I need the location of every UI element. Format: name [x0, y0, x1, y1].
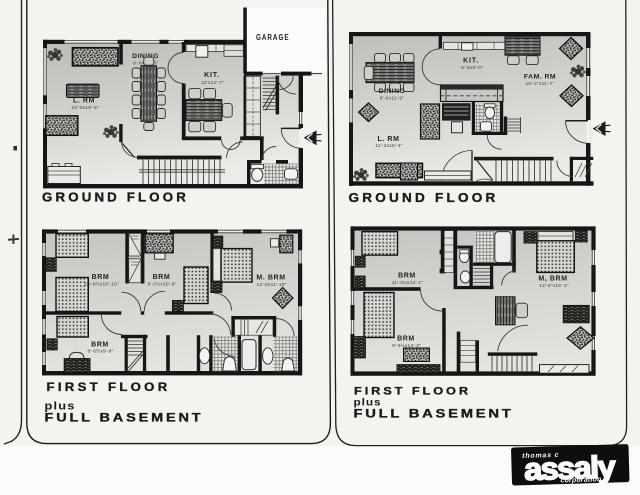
svg-text:8'-6x9'-0": 8'-6x9'-0": [461, 65, 483, 71]
svg-text:FULL BASEMENT: FULL BASEMENT: [45, 410, 204, 424]
svg-text:BRM: BRM: [397, 335, 415, 342]
svg-text:BRM: BRM: [153, 274, 171, 281]
svg-text:12'-0x11'-10": 12'-0x11'-10": [256, 282, 286, 288]
svg-text:FIRST FLOOR: FIRST FLOOR: [47, 380, 171, 394]
svg-text:10'-9½x10'-10": 10'-9½x10'-10": [84, 281, 119, 288]
svg-text:FAM. RM: FAM. RM: [524, 74, 556, 81]
svg-text:FULL BASEMENT: FULL BASEMENT: [354, 406, 514, 420]
svg-text:GROUND FLOOR: GROUND FLOOR: [42, 190, 189, 204]
svg-text:11'-3¼x12'-1": 11'-3¼x12'-1": [392, 280, 423, 286]
svg-text:8'-6½x9'-9": 8'-6½x9'-9": [88, 348, 114, 355]
svg-text:L. RM: L. RM: [73, 98, 95, 105]
svg-text:8'-0x11'-9": 8'-0x11'-9": [380, 95, 404, 101]
svg-text:12'-9"x16'-3": 12'-9"x16'-3": [539, 283, 569, 289]
svg-text:L. RM: L. RM: [377, 136, 399, 143]
svg-text:GARAGE: GARAGE: [256, 33, 290, 42]
svg-text:10'-0x19'-9": 10'-0x19'-9": [71, 105, 99, 111]
svg-text:corporation: corporation: [560, 476, 601, 484]
svg-text:KIT.: KIT.: [204, 72, 220, 79]
svg-text:DINING: DINING: [379, 88, 406, 95]
svg-text:BRM: BRM: [91, 341, 109, 348]
svg-text:BRM: BRM: [398, 272, 416, 279]
svg-text:BRM: BRM: [92, 274, 110, 281]
svg-text:9'-0½x10'-9": 9'-0½x10'-9": [148, 281, 177, 288]
svg-text:KIT.: KIT.: [463, 57, 479, 64]
svg-text:10'x12'-7": 10'x12'-7": [201, 80, 224, 86]
svg-text:M. BRM: M. BRM: [256, 275, 285, 282]
svg-text:16'-2"x11'-7": 16'-2"x11'-7": [525, 81, 554, 87]
svg-text:GROUND FLOOR: GROUND FLOOR: [349, 191, 499, 205]
svg-text:11'-2x16'-4": 11'-2x16'-4": [375, 143, 402, 149]
svg-text:M, BRM: M, BRM: [538, 276, 567, 283]
